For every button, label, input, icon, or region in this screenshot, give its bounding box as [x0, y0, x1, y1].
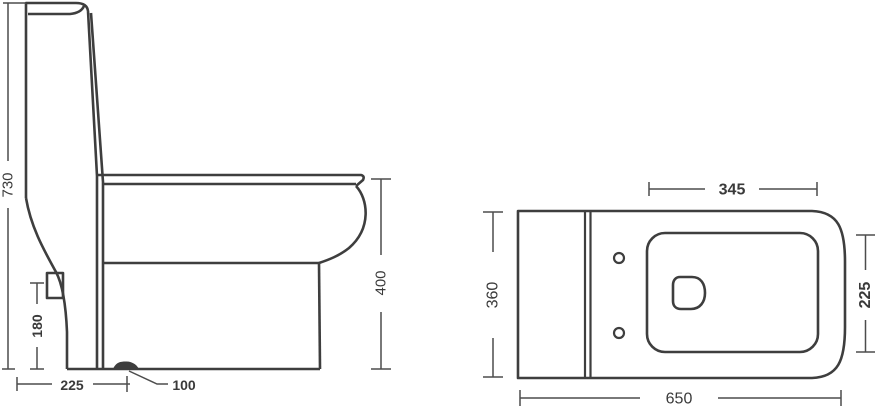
- dim-outlet-size: 100: [129, 371, 196, 393]
- seat-hinge-hole-bottom: [614, 328, 624, 338]
- flush-outlet-hole: [673, 277, 705, 309]
- seat-hinge-hole-top: [614, 253, 624, 263]
- cistern-lid-line: [28, 6, 84, 14]
- dim-label-360: 360: [485, 282, 502, 309]
- dim-label-400: 400: [373, 270, 390, 295]
- dim-label-225-top: 225: [857, 282, 874, 309]
- pedestal-front-edge: [319, 263, 320, 369]
- dim-inlet-height: 180: [29, 283, 45, 369]
- dim-seat-opening-width: 345: [649, 181, 817, 199]
- dim-label-180: 180: [29, 314, 45, 338]
- dim-label-100: 100: [172, 377, 196, 393]
- dim-label-345: 345: [719, 182, 746, 199]
- technical-drawing-canvas: 730 180 400 225: [0, 0, 876, 413]
- cistern-outer-outline: [26, 3, 88, 198]
- dim-label-730: 730: [0, 172, 17, 197]
- dim-seat-opening-depth: 225: [856, 235, 875, 352]
- toilet-dimension-drawing: 730 180 400 225: [0, 0, 876, 413]
- dim-label-650: 650: [666, 391, 693, 408]
- leader-line: [129, 371, 168, 384]
- dim-overall-height: 730: [0, 3, 26, 369]
- dim-label-225-side: 225: [60, 377, 84, 393]
- dim-body-depth: 360: [483, 212, 503, 377]
- side-view: 730 180 400 225: [0, 3, 391, 393]
- dim-outlet-setout: 225: [17, 376, 130, 393]
- dim-rim-height: 400: [371, 179, 391, 369]
- top-view: 345 360 225 650: [483, 181, 875, 408]
- bowl-front-curve: [319, 186, 366, 263]
- outlet-bump: [113, 362, 139, 370]
- dim-overall-length: 650: [520, 390, 841, 408]
